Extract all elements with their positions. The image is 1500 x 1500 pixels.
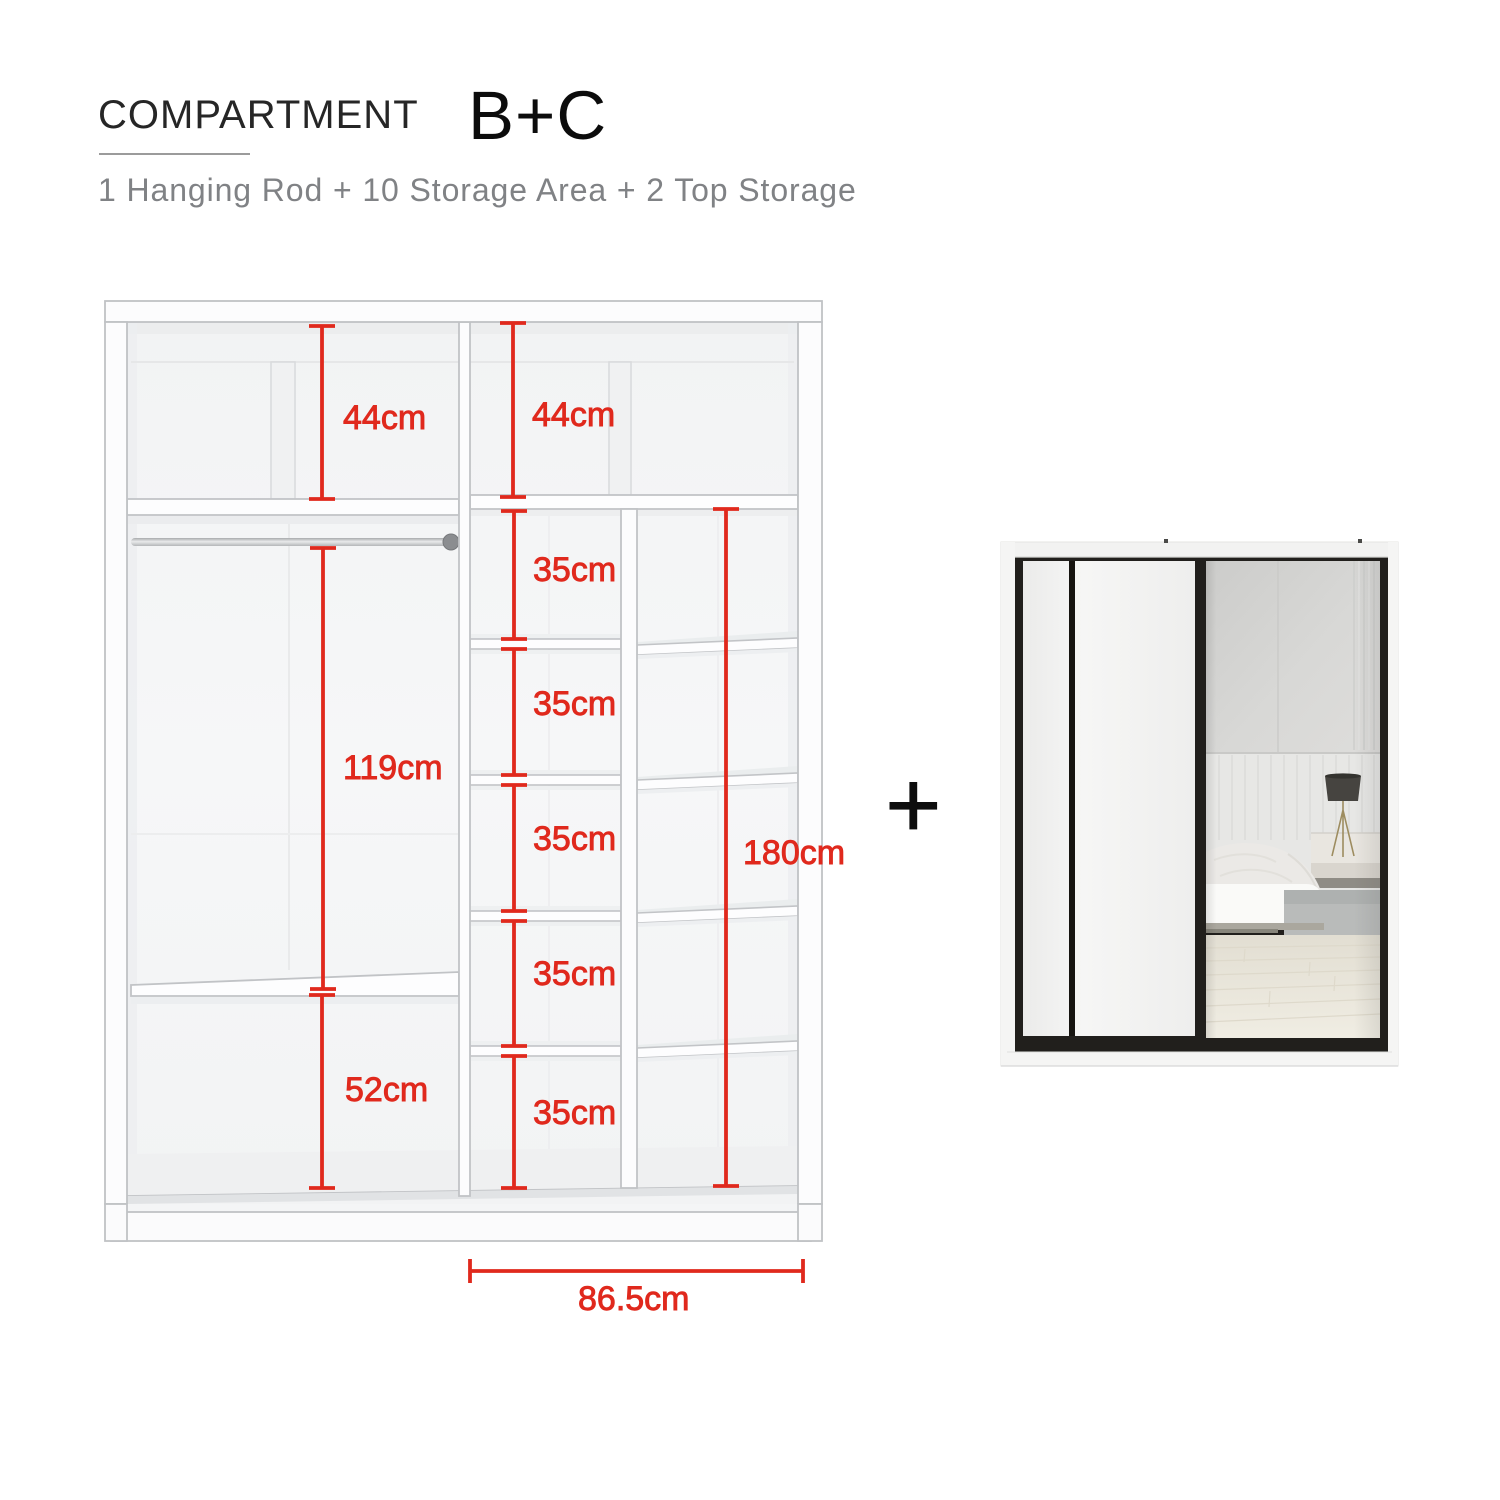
svg-text:35cm: 35cm [533,551,616,589]
svg-text:52cm: 52cm [345,1071,428,1109]
svg-text:44cm: 44cm [532,396,615,434]
svg-text:35cm: 35cm [533,955,616,993]
svg-text:35cm: 35cm [533,1094,616,1132]
svg-text:44cm: 44cm [343,399,426,437]
svg-text:86.5cm: 86.5cm [578,1280,690,1318]
svg-text:35cm: 35cm [533,820,616,858]
svg-text:180cm: 180cm [743,834,845,872]
svg-text:35cm: 35cm [533,685,616,723]
svg-text:119cm: 119cm [343,749,443,787]
